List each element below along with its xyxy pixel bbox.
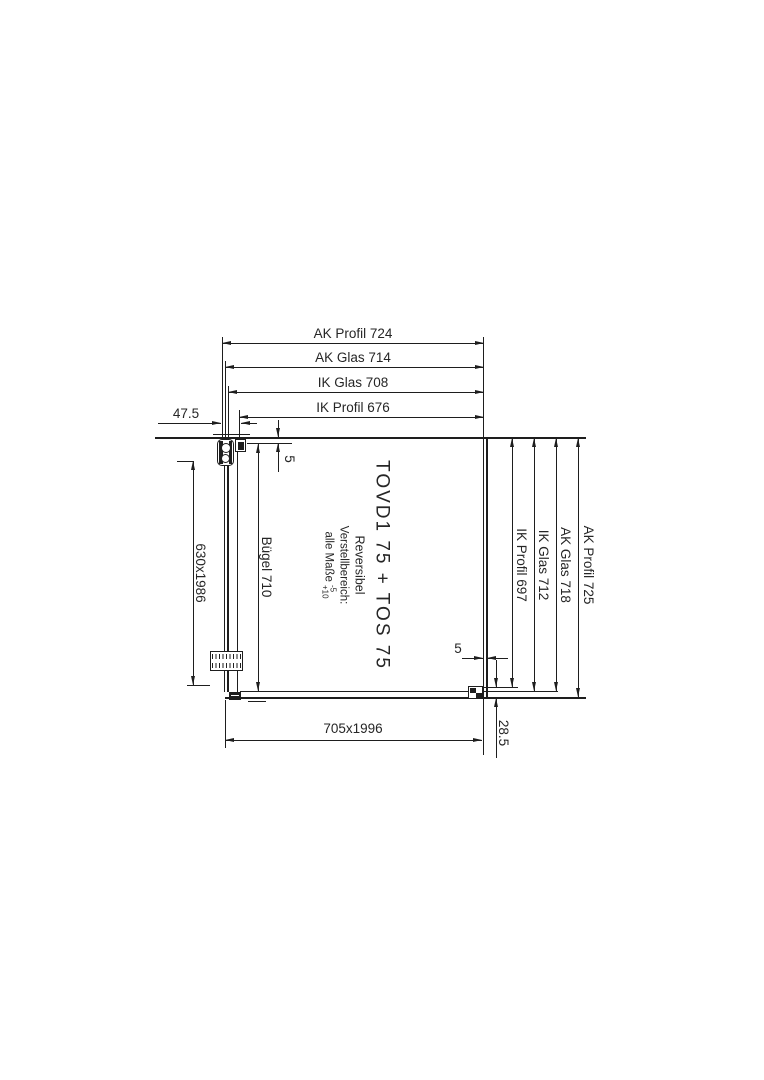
dim-label-ik-profil-width: IK Profil 676 [316,401,390,415]
tick-glass-bottom [187,685,210,686]
dim-label-bottom-offset: 28.5 [496,720,510,746]
dim-label-gap-top: 5 [282,455,296,463]
bottom-left-stub-line [248,701,266,702]
tolerance-upper: -5 [329,585,337,599]
bottom-left-clamp-slot [231,695,239,696]
arrow-left [239,415,248,419]
adjustment-range-value: alle Maße-5+10 [321,457,337,673]
ext-ak-glas-left [225,361,226,437]
dim-line-bottom-size [225,740,482,741]
ik-profil-bottom-ref-line [478,687,518,688]
panel-right-glass-edge [483,337,484,755]
dim-label-ak-glas-height: AK Glas 718 [558,527,572,603]
arrow-up [576,438,580,447]
dim-label-ik-glas-height: IK Glas 712 [536,530,550,601]
dim-label-ak-profil-width: AK Profil 724 [314,327,393,341]
arrow-down [532,682,536,691]
technical-drawing: AK Profil 724 AK Glas 714 IK Glas 708 IK… [0,0,764,1080]
arrow-left [222,341,231,345]
arrow-left [487,656,496,660]
bracket-hatch-top [212,654,241,659]
hinge-top-plate-line [213,434,250,435]
dim-label-buegel: Bügel 710 [259,537,273,598]
arrow-up [510,438,514,447]
arrow-up [554,438,558,447]
hinge-wall-block-insert [238,442,244,450]
panel-bottom-profile-line [225,697,586,699]
arrow-down [276,428,280,437]
dim-line-ik-profil-width [239,417,484,418]
arrow-right [475,415,484,419]
arrow-right [212,421,221,425]
range-prefix: alle Maße [322,531,334,582]
product-title: TOVD1 75 + TOS 75 [370,457,394,673]
dim-line-ak-glas-width [225,367,484,368]
product-label-block: TOVD1 75 + TOS 75 Reversibel Verstellber… [321,457,394,673]
arrow-right [475,390,484,394]
product-subtitle: Reversibel [351,457,368,673]
dim-label-gap-bottom: 5 [454,642,462,656]
ext-bottom-right [483,697,484,755]
hinge-pivot-lower [221,454,230,463]
panel-inner-top-line [247,443,292,444]
bottom-left-glass-clamp [229,692,241,700]
dim-label-offset: 47.5 [173,407,199,421]
panel-bottom-glass-line [240,691,558,692]
dim-line-ik-glas-width [228,392,484,393]
tolerance-lower: +10 [321,585,329,599]
dim-label-glass-size: 630x1986 [193,543,207,602]
arrow-left [228,390,237,394]
arrow-down [554,682,558,691]
arrow-right [473,738,482,742]
arrow-up [191,461,195,470]
arrow-right [475,341,484,345]
arrow-left [225,365,234,369]
dim-label-ik-profil-height: IK Profil 697 [514,528,528,602]
arrow-up [532,438,536,447]
arrow-left [225,738,234,742]
dim-label-ak-glas-width: AK Glas 714 [315,351,391,365]
dim-line-ak-profil-height [578,438,579,697]
dim-label-ak-profil-height: AK Profil 725 [581,526,595,605]
arrow-down [191,676,195,685]
adjustment-range-label: Verstellbereich: [337,457,351,673]
arrow-up [494,698,498,707]
dim-label-bottom-size: 705x1996 [323,722,382,736]
tolerance-stack: -5+10 [321,585,337,599]
arrow-down [494,678,498,687]
dim-label-ik-glas-width: IK Glas 708 [318,376,389,390]
bracket-hatch-bottom [212,663,241,668]
arrow-down [256,682,260,691]
arrow-right [475,365,484,369]
bottom-right-clamp-insert-b [476,693,482,698]
arrow-right [474,656,483,660]
dim-line-ak-profil-width [222,343,484,344]
arrow-left [241,421,250,425]
hinge-pivot-upper [221,443,231,453]
arrow-up [276,443,280,452]
ext-ik-glas-left [228,386,229,437]
ext-ak-profil-left [222,337,223,437]
arrow-down [510,678,514,687]
arrow-up [256,444,260,453]
arrow-down [576,688,580,697]
